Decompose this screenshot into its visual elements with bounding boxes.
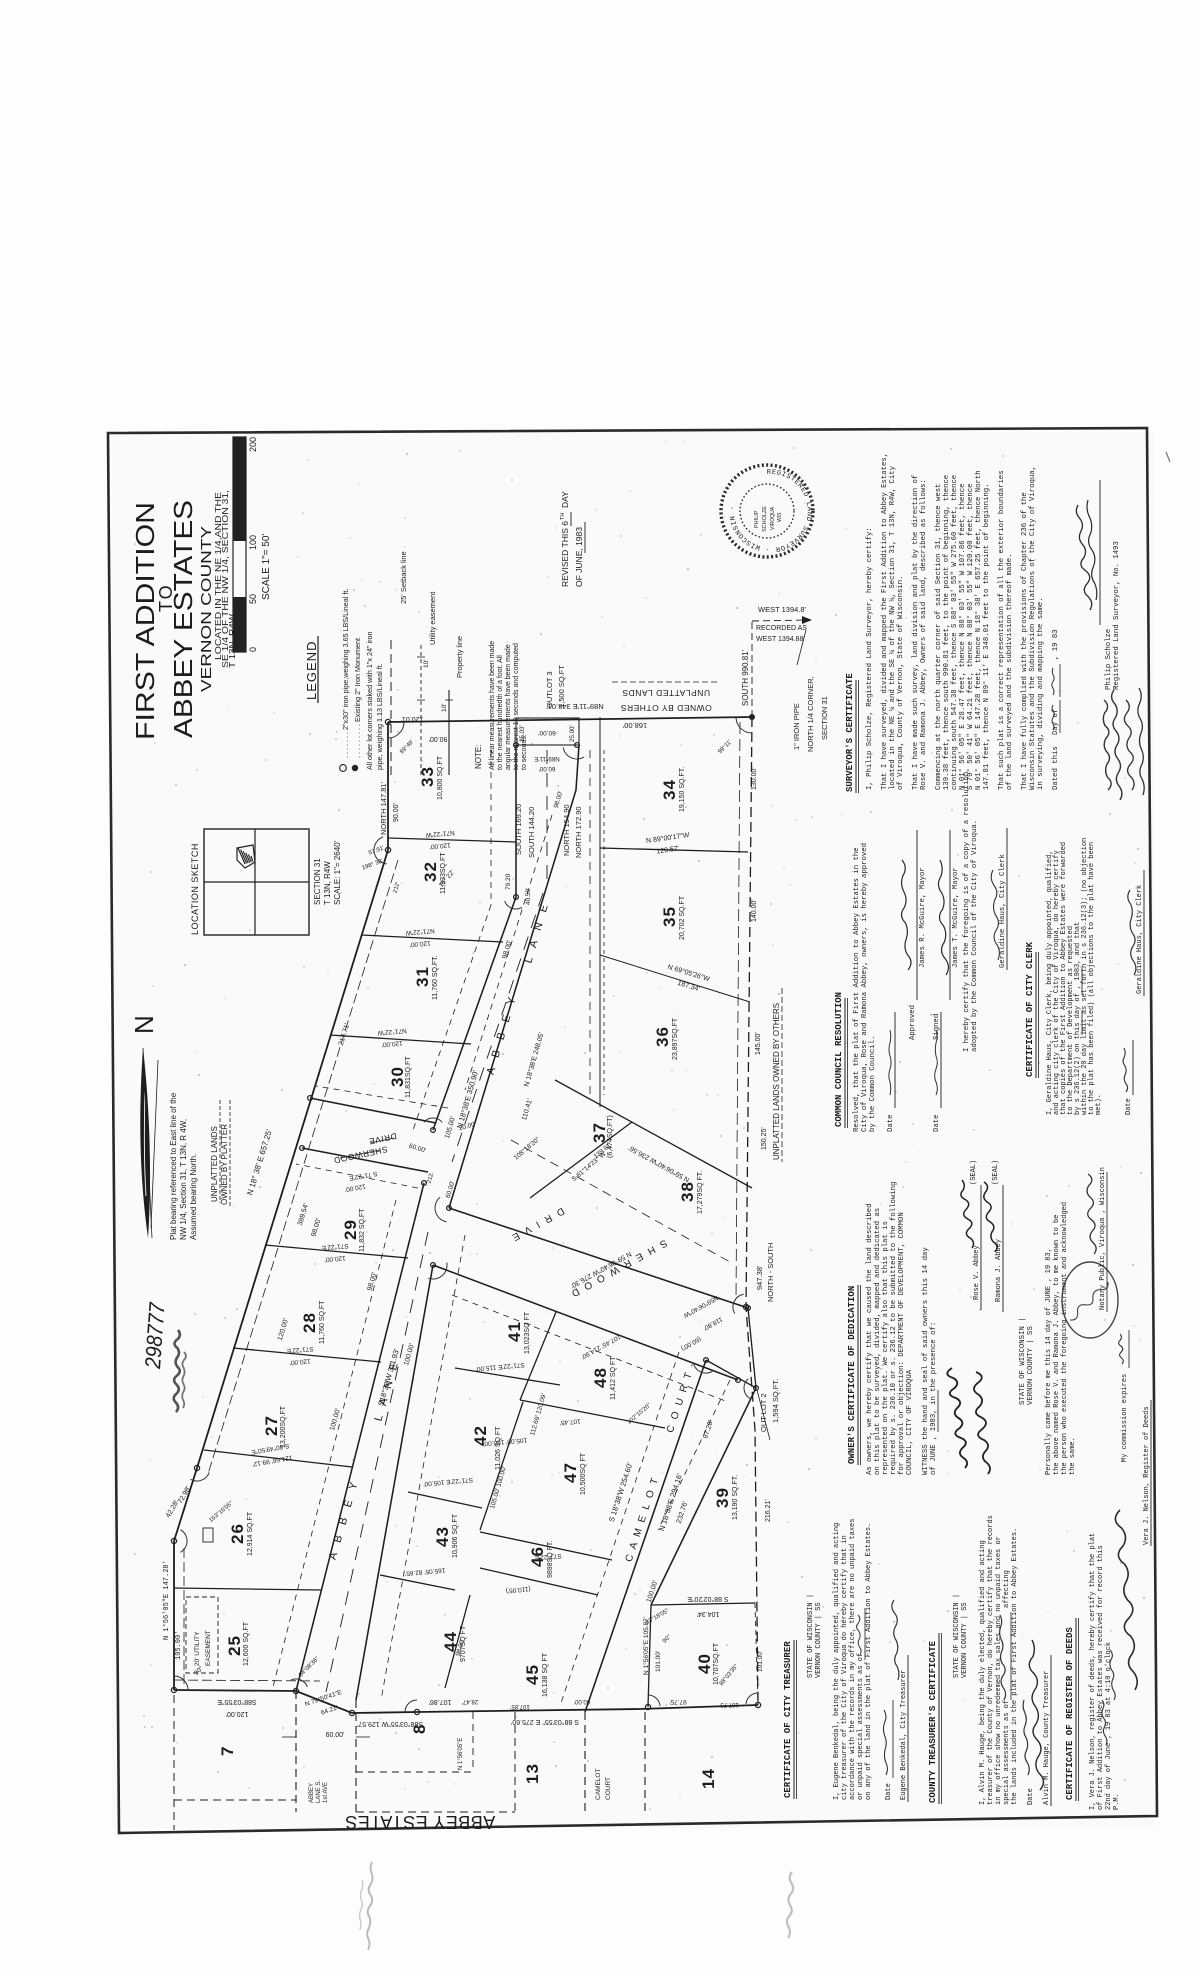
svg-text:43: 43 [433,1526,452,1547]
svg-text:947.38': 947.38' [755,1265,764,1290]
svg-text:Date: Date [1125,1098,1133,1115]
svg-text:107.86': 107.86' [429,1698,452,1705]
svg-text:CAMELOT: CAMELOT [595,1769,602,1800]
svg-text:Geraldine Haus, City Clerk: Geraldine Haus, City Clerk [999,854,1007,968]
svg-text:COUNTY TREASURER'S CERTIFICATE: COUNTY TREASURER'S CERTIFICATE [928,1640,938,1803]
svg-text:10,500SQ FT: 10,500SQ FT [580,1452,587,1495]
svg-text:CERTIFICATE OF CITY CLERK: CERTIFICATE OF CITY CLERK [1025,941,1035,1077]
svg-text:WEST 1394.88': WEST 1394.88' [756,636,805,643]
svg-text:120.01': 120.01' [401,715,424,722]
svg-text:Day of: Day of [1052,709,1060,735]
svg-text:40: 40 [695,1653,714,1674]
svg-text:Commencing at the north quarte: Commencing at the north quarter corner o… [935,483,943,790]
svg-text:affecting: affecting [1003,1570,1011,1608]
svg-text:continuing south 547.38 feet,: continuing south 547.38 feet, thence S 8… [950,475,959,790]
svg-text:city treasurer of the City of: city treasurer of the City of Viroqua do… [841,1535,849,1800]
svg-text:treasurer of the County of Ver: treasurer of the County of Vernon, do he… [987,1515,995,1805]
svg-text:ABBEY ESTATES: ABBEY ESTATES [345,1812,496,1832]
svg-text:PHILIP: PHILIP [754,510,760,528]
svg-text:N 1°56'05"E: N 1°56'05"E [458,1738,464,1770]
svg-text:60.00': 60.00' [539,765,556,772]
svg-text:CERTIFICATE OF CITY TREASURER: CERTIFICATE OF CITY TREASURER [783,1641,793,1798]
svg-text:met).: met). [1095,1094,1103,1115]
svg-text:105.00': 105.00' [175,1631,183,1660]
svg-text:CERTIFICATE OF REGISTER OF DEE: CERTIFICATE OF REGISTER OF DEEDS [1065,1627,1075,1800]
svg-text:45: 45 [523,1664,542,1685]
svg-text:Approved: Approved [909,1005,917,1040]
svg-text:NORTH 1/4 CORNER,: NORTH 1/4 CORNER, [806,676,815,752]
svg-text:for approval or objection: DE: for approval or objection: DEPARTMENT OF… [898,1212,906,1475]
svg-text:SECTION 31: SECTION 31 [820,696,829,740]
svg-text:17,279SQ FT.: 17,279SQ FT. [697,1171,704,1214]
svg-text:in my office show no unredeeme: in my office show no unredeemed tax sale… [995,1536,1003,1805]
svg-text:13: 13 [523,1763,542,1784]
svg-text:11,832 SQ.FT: 11,832 SQ.FT [359,1208,366,1252]
svg-text:(SEAL): (SEAL) [992,1160,1000,1185]
svg-text:UNPLATTED LANDS OWNED BY O: UNPLATTED LANDS OWNED BY OTHERS [772,1003,781,1160]
svg-text:107.85': 107.85' [510,1703,530,1709]
svg-text:SOUTH 990.81': SOUTH 990.81' [741,649,750,706]
svg-text:to the plat has been filed) (a: to the plat has been filed) (all objecti… [1088,842,1096,1115]
svg-text:90.00': 90.00' [429,735,448,742]
svg-text:the above named Rose V. and Ra: the above named Rose V. and Ramona J. Ab… [1053,1215,1061,1475]
svg-text:13,200SQ.FT: 13,200SQ.FT [280,1405,287,1448]
svg-text:Registered Land Surveyor, No.: Registered Land Surveyor, No. 1493 [1113,541,1121,690]
svg-text:Date: Date [933,1114,941,1132]
svg-text:Notary Public, Viroqua ,: Notary Public, Viroqua , Wisconsin [1099,1167,1107,1310]
svg-text:1" IRON PIPE: 1" IRON PIPE [792,703,801,750]
svg-text:20' UTILITY: 20' UTILITY [194,1631,201,1666]
svg-text:RECORDED AS: RECORDED AS [756,625,807,632]
svg-text:NORTH - SOUTH: NORTH - SOUTH [766,1243,775,1302]
svg-text:COUNCIL, CITY OF VIROQUA: COUNCIL, CITY OF VIROQUA [906,1369,914,1475]
svg-text:the lands included in the plat: the lands included in the plat of First … [1011,1528,1019,1805]
svg-text:That I have fully complied wit: That I have fully complied with the prov… [1021,492,1029,790]
svg-text:the same.: the same. [1069,1437,1077,1475]
svg-text:(6,474SQ.FT): (6,474SQ.FT) [607,1115,614,1158]
svg-text:or unpaid special assessments: or unpaid special assessments as of [857,1653,865,1800]
svg-text:EASEMENT: EASEMENT [205,1630,212,1666]
svg-text:140.00': 140.00' [751,899,758,922]
svg-text:WITNESS the hand and seal of: WITNESS the hand and seal of said owners… [922,1247,930,1475]
svg-text:, 19 83: , 19 83 [1052,629,1060,660]
svg-text:represented on the plat. We c: represented on the plat. We certify also… [882,1221,890,1475]
svg-text:LANE S.: LANE S. [316,1780,322,1803]
svg-text:Resolved, that the plat of Fir: Resolved, that the plat of First Additio… [853,847,861,1132]
svg-text:150.25': 150.25' [761,1127,768,1150]
svg-text:22nd day of June , 19 83: 22nd day of June , 19 83 at 4:10 o'clock [1105,1642,1113,1810]
svg-text:VIROQUA: VIROQUA [770,506,776,530]
svg-text:28: 28 [300,1312,319,1333]
svg-text:36: 36 [653,1026,672,1047]
svg-text:Philip Scholze: Philip Scholze [1105,629,1113,690]
svg-text:130.00': 130.00' [751,767,758,790]
svg-text:of First Addition to Abbey Est: of First Addition to Abbey Estates was r… [1097,1545,1105,1810]
svg-text:145.00': 145.00' [755,1032,762,1055]
svg-text:10,707SQ.FT: 10,707SQ.FT [713,1642,720,1685]
svg-text:Vera J. Nelson, Register of De: Vera J. Nelson, Register of Deeds [1143,1406,1151,1545]
svg-text:ABBEY: ABBEY [309,1783,315,1803]
svg-text:Date: Date [1027,1788,1035,1805]
svg-text:147.81 feet, thence N 89° 11': 147.81 feet, thence N 89° 11' E 348.01 f… [982,483,991,790]
svg-text:Ramona J. Abbey: Ramona J. Abbey [995,1239,1003,1302]
svg-text:I, Alvin M. Hauge, being the d: I, Alvin M. Hauge, being the duly electe… [979,1540,987,1805]
svg-text:NORTH 172.90: NORTH 172.90 [574,806,583,858]
svg-text:STATE OF WISCONSIN |: STATE OF WISCONSIN | [807,1594,815,1678]
svg-text:I, Philip Scholze, Registered: I, Philip Scholze, Registered Land Surve… [866,527,874,790]
svg-text:OWNER'S CERTIFICATE OF DEDICAT: OWNER'S CERTIFICATE OF DEDICATION [847,1286,857,1464]
svg-text:48: 48 [591,1367,610,1388]
svg-text:COMMON COUNCIL RESOLUTION: COMMON COUNCIL RESOLUTION [834,992,844,1127]
svg-text:S88°03'55"E: S88°03'55"E [217,1698,257,1706]
svg-text:12,914 SQ.FT: 12,914 SQ.FT [247,1511,254,1556]
svg-text:120.00': 120.00' [226,1710,249,1717]
svg-text:23,897SQ.FT: 23,897SQ.FT [672,1017,679,1060]
svg-text:40.50': 40.50' [525,887,532,905]
svg-text:13,023SQ FT: 13,023SQ FT [524,1311,531,1354]
svg-text:of the land surveyed and the s: of the land surveyed and the subdivision… [1006,554,1014,790]
svg-text:139.38 feet, thence south 990.: 139.38 feet, thence south 990.81 feet, t… [943,475,951,790]
svg-text:N 1°56'05"E 147.28': N 1°56'05"E 147.28' [162,1560,171,1640]
svg-text:As owners, we hereby certify t: As owners, we hereby certify that we cau… [866,1204,874,1476]
svg-text:1,500 SQ.FT: 1,500 SQ.FT [557,665,566,708]
svg-text:of JUNE , 1983, in the p: of JUNE , 1983, in the presence of: [930,1322,938,1475]
svg-text:by the Common Council.: by the Common Council. [869,1036,877,1132]
svg-text:S88°03'55"W 129.57': S88°03'55"W 129.57' [357,1720,423,1728]
svg-text:WEST 1394.8': WEST 1394.8' [758,605,807,614]
svg-text:60.00': 60.00' [538,729,556,736]
svg-text:41: 41 [505,1321,524,1342]
svg-text:N 01° 56' 05" E 147.28 feet, t: N 01° 56' 05" E 147.28 feet, thence N 18… [974,470,983,790]
svg-text:I, Vera J. Nelson, register of: I, Vera J. Nelson, register of deeds, he… [1089,1533,1097,1810]
svg-text:107.75': 107.75' [719,1701,739,1707]
svg-text:38: 38 [678,1181,697,1202]
svg-text:required by s. 236.10 or s. 23: required by s. 236.10 or s. 236.12 to be… [890,1182,898,1475]
svg-text:located in the NE ¼ and the SE: located in the NE ¼ and the SE ¼ of the … [889,465,897,790]
svg-text:SOUTH 144.20: SOUTH 144.20 [527,807,536,858]
svg-text:1,594 SQ.FT.: 1,594 SQ.FT. [771,1379,780,1423]
svg-text:City of Viroqua, Rose and Ramo: City of Viroqua, Rose and Ramona Abbey, … [861,843,869,1132]
svg-text:VERNON COUNTY | SS: VERNON COUNTY | SS [961,1602,969,1678]
svg-text:P.M.: P.M. [1113,1793,1121,1810]
svg-text:19,150 SQ.FT.: 19,150 SQ.FT. [679,767,686,812]
svg-text:Personally came before me this: Personally came before me this 14 day of… [1045,1248,1053,1475]
svg-text:N89°11'E 348.01': N89°11'E 348.01' [546,702,604,711]
svg-text:14: 14 [699,1768,718,1789]
svg-text:39: 39 [713,1487,732,1508]
svg-text:(SEAL): (SEAL) [970,1160,978,1185]
svg-text:special assessments as of: special assessments as of [1003,1700,1011,1805]
svg-text:NORTH 147.81': NORTH 147.81' [379,781,388,835]
svg-text:WIS: WIS [777,512,783,522]
svg-text:James R. McGuire, Mayor: James R. McGuire, Mayor [919,867,927,968]
svg-text:STATE OF WISCONSIN |: STATE OF WISCONSIN | [1019,1317,1027,1405]
svg-text:S 88°02'20"E: S 88°02'20"E [687,1595,729,1603]
svg-text:Date: Date [887,1114,895,1132]
svg-text:Signed: Signed [933,1014,941,1040]
svg-text:90.00': 90.00' [393,803,400,822]
svg-text:Wisconsin Statutes and the Sub: Wisconsin Statutes and the Subdivision R… [1029,466,1037,790]
svg-text:OWNED BY OTHERS: OWNED BY OTHERS [620,703,711,713]
svg-text:S 88°03'55" E 275.60': S 88°03'55" E 275.60' [511,1718,579,1726]
svg-text:11,760 SQ.FT: 11,760 SQ.FT [319,1300,326,1344]
svg-text:29: 29 [341,1219,360,1240]
svg-text:11,412 SQ FT: 11,412 SQ FT [610,1356,617,1400]
svg-text:10,906 SQ.FT: 10,906 SQ.FT [452,1513,459,1558]
svg-text:11,831SQ.FT: 11,831SQ.FT [405,1056,412,1098]
svg-text:VERNON COUNTY | SS: VERNON COUNTY | SS [815,1602,823,1678]
svg-text:1st AVE: 1st AVE [323,1782,329,1803]
svg-text:168.00': 168.00' [622,721,647,730]
svg-text:97.75': 97.75' [669,1698,687,1705]
svg-text:60.00': 60.00' [326,1732,345,1739]
svg-text:101.00': 101.00' [655,1651,662,1672]
svg-text:20,702 SQ.FT: 20,702 SQ.FT [679,895,686,940]
svg-text:79.20: 79.20 [505,873,512,890]
svg-text:accordance with the records in: accordance with the records in my office… [849,1519,857,1800]
svg-text:VERNON COUNTY | SS: VERNON COUNTY | SS [1027,1326,1035,1405]
svg-text:Rose V. and Ramona J. Abbey, O: Rose V. and Ramona J. Abbey, Owners of s… [920,479,928,790]
svg-text:N 1°56'05"E 105.87': N 1°56'05"E 105.87' [642,1617,650,1675]
svg-text:Date: Date [885,1783,893,1800]
svg-text:25.00': 25.00' [569,725,576,742]
svg-text:32: 32 [421,861,440,882]
svg-text:60.00': 60.00' [574,1698,590,1704]
svg-text:COURT: COURT [605,1777,612,1800]
svg-text:That I have made such survey,: That I have made such survey, land divis… [912,475,920,790]
svg-text:10,800 SQ.FT: 10,800 SQ.FT [437,755,444,800]
svg-text:34: 34 [660,779,679,800]
svg-text:13,190 SQ.FT.: 13,190 SQ.FT. [732,1475,739,1520]
svg-text:of Viroqua, County of Vernon,: of Viroqua, County of Vernon, State of W… [897,575,905,790]
svg-text:N89°11'E: N89°11'E [534,755,560,762]
svg-text:28.47': 28.47' [462,1698,478,1704]
svg-text:12,600 SQ.FT: 12,600 SQ.FT [243,1621,250,1666]
svg-text:31: 31 [413,966,432,987]
svg-text:SURVEYOR'S CERTIFICATE: SURVEYOR'S CERTIFICATE [845,673,855,792]
svg-text:11,760 SQ.FT.: 11,760 SQ.FT. [432,955,439,1000]
svg-text:Geraldine Haus, City Clerk: Geraldine Haus, City Clerk [1136,885,1144,994]
svg-text:16,138 SQ FT: 16,138 SQ FT [542,1652,549,1697]
svg-text:SCHOLZE: SCHOLZE [762,506,768,532]
svg-text:NORTH 154.90: NORTH 154.90 [562,804,571,856]
svg-text:Rose V. Abbey: Rose V. Abbey [973,1245,981,1300]
svg-text:26: 26 [228,1523,247,1544]
svg-text:SOUTH 169.20: SOUTH 169.20 [514,804,523,855]
svg-text:S 79° 50' 41" W 64.21 feet, th: S 79° 50' 41" W 64.21 feet, thence N 88°… [966,483,975,790]
svg-text:11,026 SQ FT: 11,026 SQ FT [495,1426,502,1470]
svg-text:33: 33 [418,766,437,787]
svg-text:101.00': 101.00' [757,1651,764,1672]
svg-text:Alvin M. Hauge, County Treasur: Alvin M. Hauge, County Treasurer [1043,1671,1051,1805]
svg-text:Eugene Benkedal, City Treasure: Eugene Benkedal, City Treasurer [900,1670,908,1800]
svg-text:7: 7 [218,1746,237,1756]
svg-text:in surveying, dividing and map: in surveying, dividing and mapping the s… [1037,597,1045,790]
svg-text:I, Eugene Benkedal, being the: I, Eugene Benkedal, being the duly appoi… [833,1523,841,1800]
svg-text:STATE OF WISCONSIN |: STATE OF WISCONSIN | [953,1594,961,1678]
svg-text:adopted by the Common Council: adopted by the Common Council of the Cit… [971,820,979,1052]
svg-text:the person who executed the fo: the person who executed the foregoing in… [1061,1202,1069,1475]
svg-text:27: 27 [262,1415,281,1436]
svg-text:35: 35 [660,906,679,927]
svg-text:216.21': 216.21' [765,1499,772,1522]
svg-text:Dated this: Dated this [1052,746,1060,790]
svg-text:25: 25 [225,1635,244,1656]
svg-text:25.03': 25.03' [519,725,526,742]
svg-text:That I have surveyed, divided: That I have surveyed, divided and mapped… [881,453,889,790]
svg-text:I hereby certify that the fore: I hereby certify that the foregoing is o… [963,772,971,1052]
svg-text:James T. McGuire, Mayor: James T. McGuire, Mayor [952,867,960,968]
svg-text:on this plat to be surveyed, d: on this plat to be surveyed, divided, ma… [874,1208,882,1475]
svg-text:UNPLATTED LANDS: UNPLATTED LANDS [622,688,710,698]
svg-text:That such plat is a correct re: That such plat is a correct representati… [998,470,1006,790]
svg-text:47: 47 [561,1462,580,1483]
svg-text:My commission expires: My commission expires [1121,1374,1129,1462]
svg-text:N 01° 56' 05" E 28.47 feet, th: N 01° 56' 05" E 28.47 feet, thence N 88°… [958,483,967,790]
svg-text:on any of the land in the plat: on any of the land in the plat of First … [865,1523,873,1800]
svg-text:104.34': 104.34' [697,1610,720,1617]
